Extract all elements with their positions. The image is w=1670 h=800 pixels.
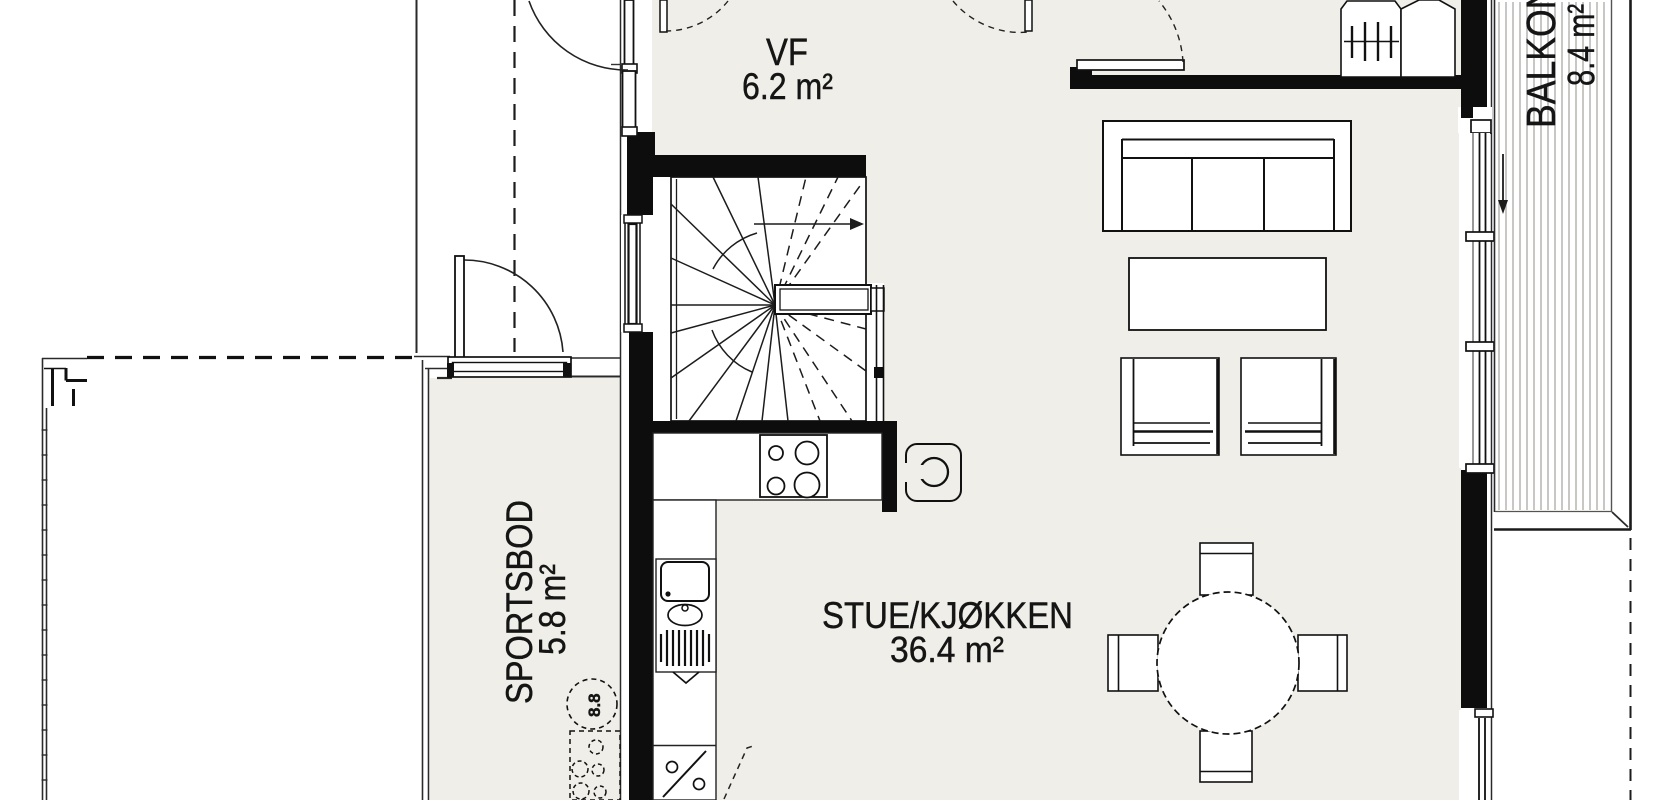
svg-text:8.4 m²: 8.4 m² xyxy=(1561,4,1603,86)
svg-text:8.8: 8.8 xyxy=(585,693,604,717)
svg-text:36.4 m²: 36.4 m² xyxy=(890,629,1004,670)
svg-text:BALKONG: BALKONG xyxy=(1518,0,1564,128)
svg-text:6.2 m²: 6.2 m² xyxy=(742,66,833,107)
svg-text:5.8 m²: 5.8 m² xyxy=(532,564,573,655)
